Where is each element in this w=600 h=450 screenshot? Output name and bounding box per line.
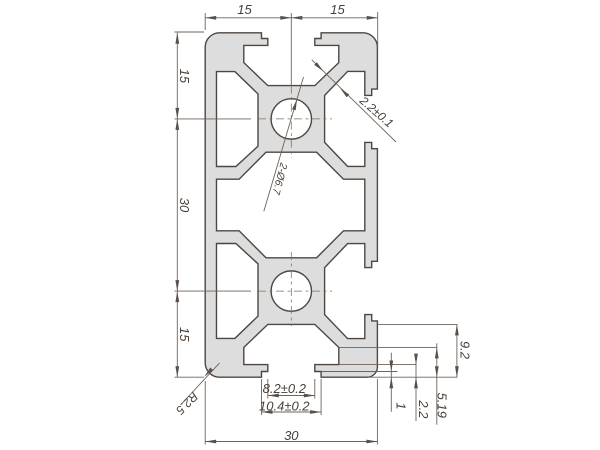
svg-text:5.19: 5.19 [435,393,450,418]
svg-text:1: 1 [394,402,409,409]
svg-text:9.2: 9.2 [458,341,473,360]
svg-text:15: 15 [330,2,345,17]
svg-text:15: 15 [177,327,192,342]
svg-text:15: 15 [177,69,192,84]
svg-text:2.2: 2.2 [416,399,431,419]
svg-text:15: 15 [237,2,252,17]
svg-text:8.2±0.2: 8.2±0.2 [263,381,307,396]
svg-text:30: 30 [177,198,192,213]
svg-text:10.4±0.2: 10.4±0.2 [259,399,310,414]
svg-text:30: 30 [284,428,299,443]
